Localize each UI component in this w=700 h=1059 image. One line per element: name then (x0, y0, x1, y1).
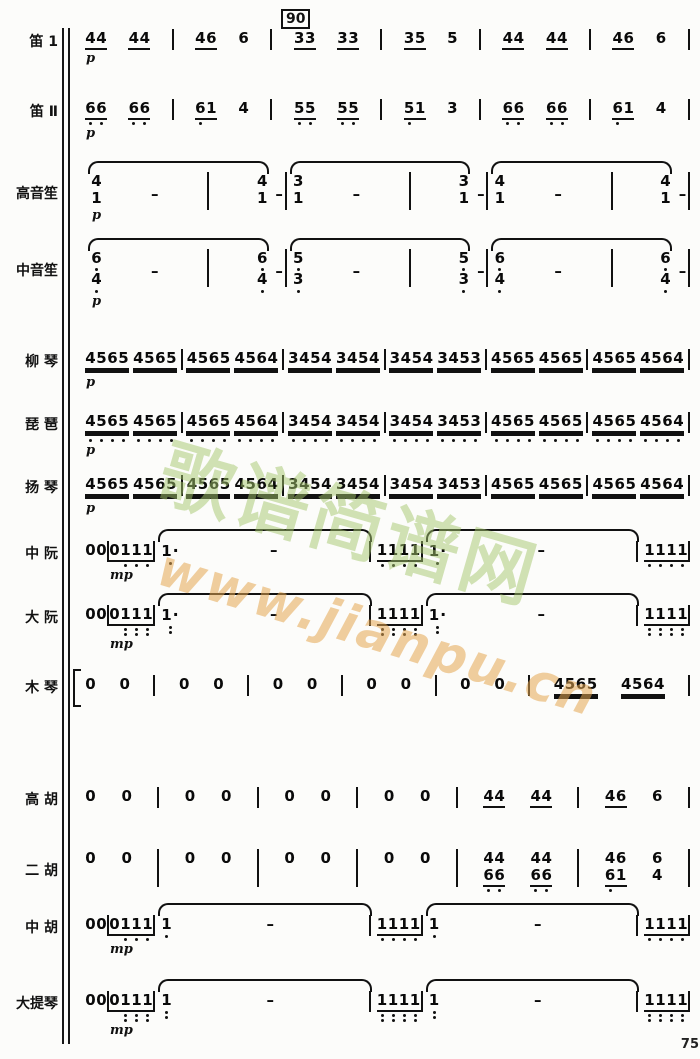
low-octave-dot (618, 439, 621, 442)
note-digit: 1 (429, 916, 440, 933)
note-group: – (532, 992, 543, 1009)
low-octave-dot (433, 935, 436, 938)
note-digit: 4 (321, 350, 332, 367)
chord-top-digit: 4 (257, 173, 268, 190)
note-digit: 1· (429, 606, 447, 624)
digit-row: 3454 (389, 350, 433, 370)
note-group: 1· (429, 606, 447, 634)
low-octave-dot (534, 889, 537, 892)
octave-dots (651, 437, 662, 442)
note-digit: 1 (677, 606, 688, 623)
note-digit: 6 (208, 413, 219, 430)
note-digit: 5 (572, 413, 583, 430)
octave-dots (415, 120, 426, 125)
barline (688, 475, 690, 496)
chord-top-row: 5 (458, 250, 469, 271)
low-octave-dot (498, 889, 501, 892)
digit-row: 4565 (85, 476, 129, 496)
note-group: 44p (85, 30, 107, 50)
instrument-label: 笛 1 (0, 31, 58, 51)
note-digit: 4 (186, 350, 197, 367)
note-digit: 1 (677, 542, 688, 559)
octave-dots (107, 437, 118, 442)
tie-arc-group: 1·– (157, 542, 375, 565)
note-digit: 5 (651, 350, 662, 367)
note-digit: 4 (612, 30, 623, 47)
note-digit: 5 (305, 100, 316, 117)
low-octave-dot (648, 564, 651, 567)
low-octave-dot (554, 439, 557, 442)
low-octave-dot (238, 439, 241, 442)
octave-dots (389, 437, 400, 442)
octave-dots (267, 437, 278, 442)
note-group: 4564 (640, 476, 684, 500)
note-digit: 0 (185, 850, 196, 867)
note-digit: 0 (96, 916, 107, 933)
note-digit: 5 (118, 413, 129, 430)
barline (636, 991, 638, 1012)
octave-dot-row (294, 120, 316, 125)
note-digit: 5 (447, 30, 458, 47)
note-digit: 4 (234, 413, 245, 430)
music-line: 0001mp111·–11111·–1111 (85, 606, 690, 636)
digit-row: 11 (644, 916, 666, 936)
digit-row: 44 (546, 30, 568, 50)
digit-row: 4565 (491, 476, 535, 496)
barline (369, 541, 371, 562)
note-digit: 4 (400, 350, 411, 367)
dash-rest: – (149, 186, 160, 203)
octave-dots (603, 437, 614, 442)
low-octave-dot (517, 122, 520, 125)
digit-row: 11 (377, 992, 399, 1012)
digit-row: 4565 (186, 413, 230, 433)
note-group: 0 (307, 676, 318, 693)
digit-row: 3454 (389, 476, 433, 496)
note-group: 0 (85, 850, 96, 867)
note-digit: 6 (561, 350, 572, 367)
low-octave-dot (426, 439, 429, 442)
note-group: – (677, 186, 688, 203)
note-digit: 4 (267, 350, 278, 367)
low-octave-dot (403, 1019, 406, 1022)
augmentation-dot: · (173, 541, 179, 560)
note-group: 0 (400, 676, 411, 693)
note-group: – (351, 186, 362, 203)
note-digit: 0 (119, 676, 130, 693)
note-digit: 1 (644, 606, 655, 623)
note-digit: 6 (623, 30, 634, 47)
chord-group: 4466 (530, 850, 552, 892)
low-octave-dot (351, 439, 354, 442)
part-bracket (73, 669, 81, 707)
octave-dots (640, 437, 651, 442)
chord-bottom-digit: 6 (541, 867, 552, 884)
note-digit: 1 (120, 916, 131, 933)
digit-row: 4565 (539, 350, 583, 370)
low-octave-dot (122, 439, 125, 442)
note-digit: 0 (109, 606, 120, 623)
note-digit: 1 (655, 542, 666, 559)
digit-row: 3453 (437, 350, 481, 370)
low-octave-dot (659, 1019, 662, 1022)
octave-dots (399, 626, 410, 636)
note-digit: 4 (321, 413, 332, 430)
barline (181, 412, 183, 433)
note-digit: 6 (502, 100, 513, 117)
note-digit: 5 (144, 350, 155, 367)
octave-dots (411, 437, 422, 442)
note-group: 4565 (133, 350, 177, 374)
note-group: 01mp (109, 542, 131, 567)
octave-dot-row (389, 437, 433, 442)
octave-dots (655, 936, 666, 941)
low-octave-dot (414, 628, 417, 631)
low-octave-dot (260, 439, 263, 442)
octave-dots (644, 626, 655, 636)
note-digit: 5 (625, 476, 636, 493)
octave-dots (257, 288, 268, 293)
music-line: 66p6661455555136666614 (85, 100, 690, 125)
low-octave-dot (146, 1014, 149, 1017)
digit-row: 11 (377, 542, 399, 562)
octave-dots (623, 120, 634, 125)
low-octave-dot (392, 564, 395, 567)
low-octave-dot (403, 938, 406, 941)
octave-dot-row (399, 562, 421, 567)
chord-top-digit: 6 (616, 850, 627, 867)
note-group: 0 (185, 788, 196, 805)
note-digit: 1 (399, 542, 410, 559)
chord-top-digit: 4 (494, 173, 505, 190)
low-octave-dot (146, 633, 149, 636)
note-group: 4565 (186, 350, 230, 374)
note-group: 1 (429, 916, 440, 938)
digit-row: – (677, 186, 688, 203)
chord-top-row: 44 (483, 850, 505, 867)
chord-bottom-row: 3 (293, 271, 304, 288)
note-group: – (553, 263, 564, 280)
note-digit: 5 (219, 413, 230, 430)
rehearsal-mark: 90 (281, 9, 310, 29)
note-digit: 4 (557, 30, 568, 47)
note-digit: 5 (118, 350, 129, 367)
chord-group: 53 (458, 250, 469, 293)
digit-row: – (265, 916, 276, 933)
note-digit: 4 (299, 413, 310, 430)
octave-dot-row (161, 624, 179, 634)
low-octave-dot (135, 1019, 138, 1022)
digit-row: 44 (85, 30, 107, 50)
instrument-label: 二 胡 (0, 860, 58, 880)
barline (688, 605, 690, 626)
barline (611, 249, 613, 287)
note-group: 0 (272, 676, 283, 693)
digit-row: 0 (320, 850, 331, 867)
note-digit: 4 (369, 476, 380, 493)
note-digit: 5 (310, 413, 321, 430)
octave-dots (539, 437, 550, 442)
octave-dots (294, 120, 305, 125)
octave-dots (550, 437, 561, 442)
note-digit: 1 (666, 992, 677, 1009)
octave-dots (195, 120, 206, 125)
octave-dots (399, 562, 410, 567)
note-digit: 1 (161, 916, 172, 933)
note-digit: 1 (623, 100, 634, 117)
music-line: 0001mp111–11111–1111 (85, 992, 690, 1022)
barline (528, 675, 530, 696)
note-group: 0 (420, 788, 431, 805)
note-digit: 1 (410, 542, 421, 559)
digit-row: 11 (666, 916, 688, 936)
note-digit: 5 (294, 100, 305, 117)
music-line: 000000004444466 (85, 788, 690, 808)
note-digit: 0 (85, 542, 96, 559)
octave-dot-row (539, 437, 583, 442)
low-octave-dot (403, 1014, 406, 1017)
note-digit: 6 (107, 413, 118, 430)
low-octave-dot (648, 633, 651, 636)
note-digit: 5 (502, 413, 513, 430)
low-octave-dot (159, 439, 162, 442)
digit-row: 4564 (621, 676, 665, 696)
note-digit: 1 (142, 542, 153, 559)
note-group: 11 (377, 542, 399, 567)
note-group: 3 (447, 100, 458, 117)
dash-rest: – (351, 186, 362, 203)
dash-rest: – (274, 263, 285, 280)
dynamic-marking: p (86, 375, 95, 390)
digit-row: 3453 (437, 413, 481, 433)
note-digit: 0 (307, 676, 318, 693)
octave-dots (410, 1012, 421, 1022)
octave-dots (131, 626, 142, 636)
note-digit: 0 (179, 676, 190, 693)
chord-top-row: 6 (652, 850, 663, 867)
octave-dots (109, 936, 120, 941)
digit-row: 66 (546, 100, 568, 120)
note-group: 4565 (186, 413, 230, 442)
note-digit: 5 (197, 476, 208, 493)
low-octave-dot (670, 628, 673, 631)
tie-arc-group: 64–64 (490, 250, 675, 293)
digit-row: 0 (85, 788, 96, 805)
digit-row: 0 (185, 788, 196, 805)
digit-row: 0 (320, 788, 331, 805)
low-octave-dot (403, 628, 406, 631)
barline (479, 29, 481, 50)
note-group: 0 (494, 676, 505, 693)
music-line: 4565p45654565456434543454345434534565456… (85, 476, 690, 500)
note-digit: 0 (85, 992, 96, 1009)
digit-row: 1· (161, 542, 179, 560)
note-group: 3454 (288, 476, 332, 500)
octave-dot-row (186, 437, 230, 442)
digit-row: 3 (447, 100, 458, 117)
note-digit: 4 (530, 788, 541, 805)
barline (153, 541, 155, 562)
note-digit: 1 (399, 606, 410, 623)
digit-row: – (351, 186, 362, 203)
digit-row: 4565 (491, 350, 535, 370)
low-octave-dot (436, 631, 439, 634)
note-digit: 5 (603, 413, 614, 430)
octave-dots (299, 437, 310, 442)
note-group: 11 (131, 542, 153, 567)
low-octave-dot (648, 1014, 651, 1017)
note-group: 0 (121, 788, 132, 805)
low-octave-dot (292, 439, 295, 442)
low-octave-dot (506, 439, 509, 442)
augmentation-dot: · (440, 605, 446, 624)
octave-dots (85, 120, 96, 125)
chord-bottom-digit: 4 (652, 867, 663, 884)
digit-row: 1 (161, 916, 172, 933)
digit-row: 11 (399, 916, 421, 936)
octave-dots (644, 1012, 655, 1022)
note-digit: 4 (186, 476, 197, 493)
digit-row: 0 (96, 916, 107, 933)
note-digit: 1 (142, 992, 153, 1009)
low-octave-dot (223, 439, 226, 442)
note-group: 11 (399, 542, 421, 567)
octave-dots (142, 626, 153, 636)
barline (369, 991, 371, 1012)
octave-dots (513, 120, 524, 125)
barline (207, 172, 209, 210)
dash-rest: – (351, 263, 362, 280)
octave-dot-row (131, 936, 153, 941)
note-group: 4564 (234, 413, 278, 442)
chord-bottom-digit: 1 (458, 190, 469, 207)
octave-dots (666, 936, 677, 941)
low-octave-dot (433, 1011, 436, 1014)
barline (153, 915, 155, 936)
barline (157, 849, 159, 887)
low-octave-dot (498, 290, 501, 293)
note-digit: 4 (539, 413, 550, 430)
dash-rest: – (475, 263, 486, 280)
note-digit: 5 (651, 476, 662, 493)
digit-row: 0 (284, 788, 295, 805)
note-group: 44 (483, 788, 505, 808)
low-octave-dot (124, 633, 127, 636)
instrument-label: 中 胡 (0, 917, 58, 937)
note-digit: 3 (336, 413, 347, 430)
digit-row: 4 (656, 100, 667, 117)
octave-dots (186, 437, 197, 442)
note-digit: 3 (470, 413, 481, 430)
low-octave-dot (381, 1019, 384, 1022)
low-octave-dot (135, 564, 138, 567)
dash-rest: – (268, 606, 279, 623)
note-digit: 1 (655, 606, 666, 623)
chord-bottom-row: 1 (293, 190, 304, 207)
octave-dots (155, 437, 166, 442)
note-group: 01mp (109, 992, 131, 1022)
note-digit: 5 (337, 100, 348, 117)
note-digit: 4 (448, 476, 459, 493)
note-digit: 4 (400, 413, 411, 430)
octave-dots (142, 1012, 153, 1022)
octave-dot-row (491, 437, 535, 442)
dash-rest: – (677, 263, 688, 280)
note-group: 4565 (539, 476, 583, 500)
note-digit: 6 (576, 676, 587, 693)
note-digit: 3 (348, 30, 359, 47)
low-octave-dot (124, 1014, 127, 1017)
music-line: 4565p45654565456434543454345434534565456… (85, 350, 690, 374)
digit-row: 1 (161, 992, 172, 1009)
dash-rest: – (274, 186, 285, 203)
low-octave-dot (392, 633, 395, 636)
barline (270, 99, 272, 120)
low-octave-dot (169, 626, 172, 629)
note-group: 0 (96, 606, 107, 623)
note-digit: 1 (142, 916, 153, 933)
note-digit: 0 (420, 788, 431, 805)
note-group: 4564 (640, 413, 684, 442)
note-group: 0 (320, 850, 331, 867)
note-group: 44 (502, 30, 524, 50)
chord-top-row: 46 (605, 850, 627, 867)
octave-dots (131, 1012, 142, 1022)
octave-dots (293, 288, 304, 293)
barline (456, 787, 458, 808)
note-digit: 5 (358, 413, 369, 430)
octave-dot-row (131, 562, 153, 567)
note-digit: 1 (142, 606, 153, 623)
note-group: 11 (399, 606, 421, 636)
note-digit: 4 (238, 100, 249, 117)
low-octave-dot (670, 1019, 673, 1022)
music-line: 64p–64–53–53–64–64– (85, 250, 690, 293)
low-octave-dot (170, 439, 173, 442)
note-digit: 6 (256, 413, 267, 430)
digit-row: 11 (131, 542, 153, 562)
octave-dots (616, 887, 627, 892)
note-group: 4565 (491, 476, 535, 500)
barline (688, 787, 690, 808)
octave-dot-row (128, 120, 150, 125)
octave-dots (662, 437, 673, 442)
note-digit: 1 (415, 100, 426, 117)
low-octave-dot (124, 938, 127, 941)
octave-dots (347, 437, 358, 442)
note-digit: 1 (655, 992, 666, 1009)
note-digit: 1 (120, 992, 131, 1009)
note-digit: 1 (131, 606, 142, 623)
low-octave-dot (314, 439, 317, 442)
note-digit: 1 (399, 992, 410, 1009)
note-group: 4565 (186, 476, 230, 500)
octave-dot-row (666, 562, 688, 567)
chord-top-row: 4 (660, 173, 671, 190)
barline (485, 349, 487, 370)
note-digit: 5 (502, 350, 513, 367)
barline (172, 99, 174, 120)
note-digit: 1 (655, 916, 666, 933)
chord-bottom-digit: 4 (91, 271, 102, 288)
augmentation-dot: · (173, 605, 179, 624)
barline (181, 349, 183, 370)
barline (611, 172, 613, 210)
note-digit: 6 (107, 476, 118, 493)
note-digit: 4 (299, 350, 310, 367)
note-digit: 3 (288, 350, 299, 367)
note-digit: 1 (377, 916, 388, 933)
